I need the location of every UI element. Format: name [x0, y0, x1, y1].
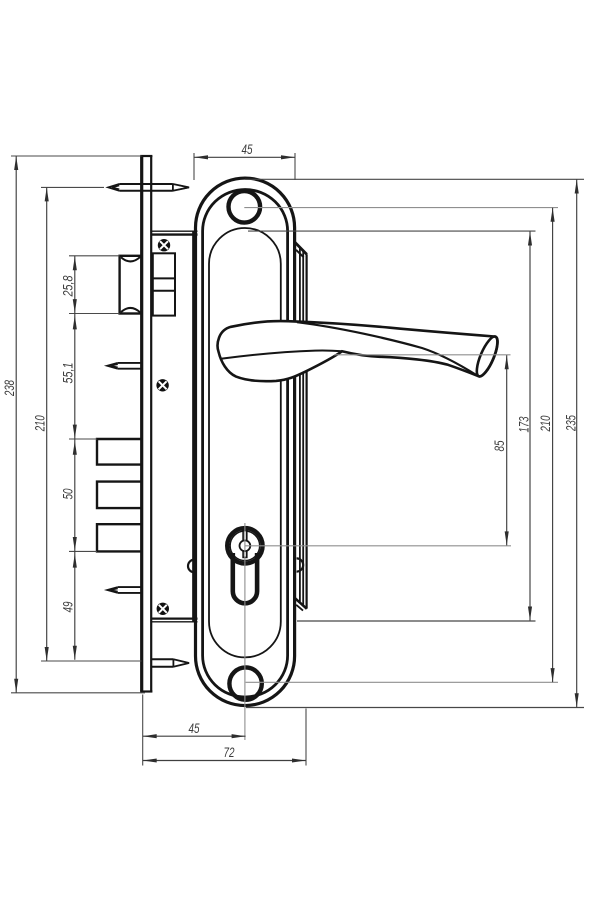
svg-text:173: 173 [515, 416, 531, 432]
svg-text:235: 235 [562, 415, 578, 432]
svg-text:210: 210 [31, 415, 47, 432]
svg-text:55,1: 55,1 [60, 363, 76, 384]
svg-text:210: 210 [537, 415, 553, 432]
svg-text:238: 238 [1, 380, 17, 397]
svg-text:45: 45 [189, 720, 200, 736]
svg-text:49: 49 [60, 601, 76, 612]
svg-text:25,8: 25,8 [60, 275, 76, 297]
svg-text:50: 50 [60, 488, 76, 499]
svg-text:45: 45 [242, 141, 253, 157]
svg-text:85: 85 [491, 440, 507, 451]
svg-text:72: 72 [224, 744, 235, 760]
